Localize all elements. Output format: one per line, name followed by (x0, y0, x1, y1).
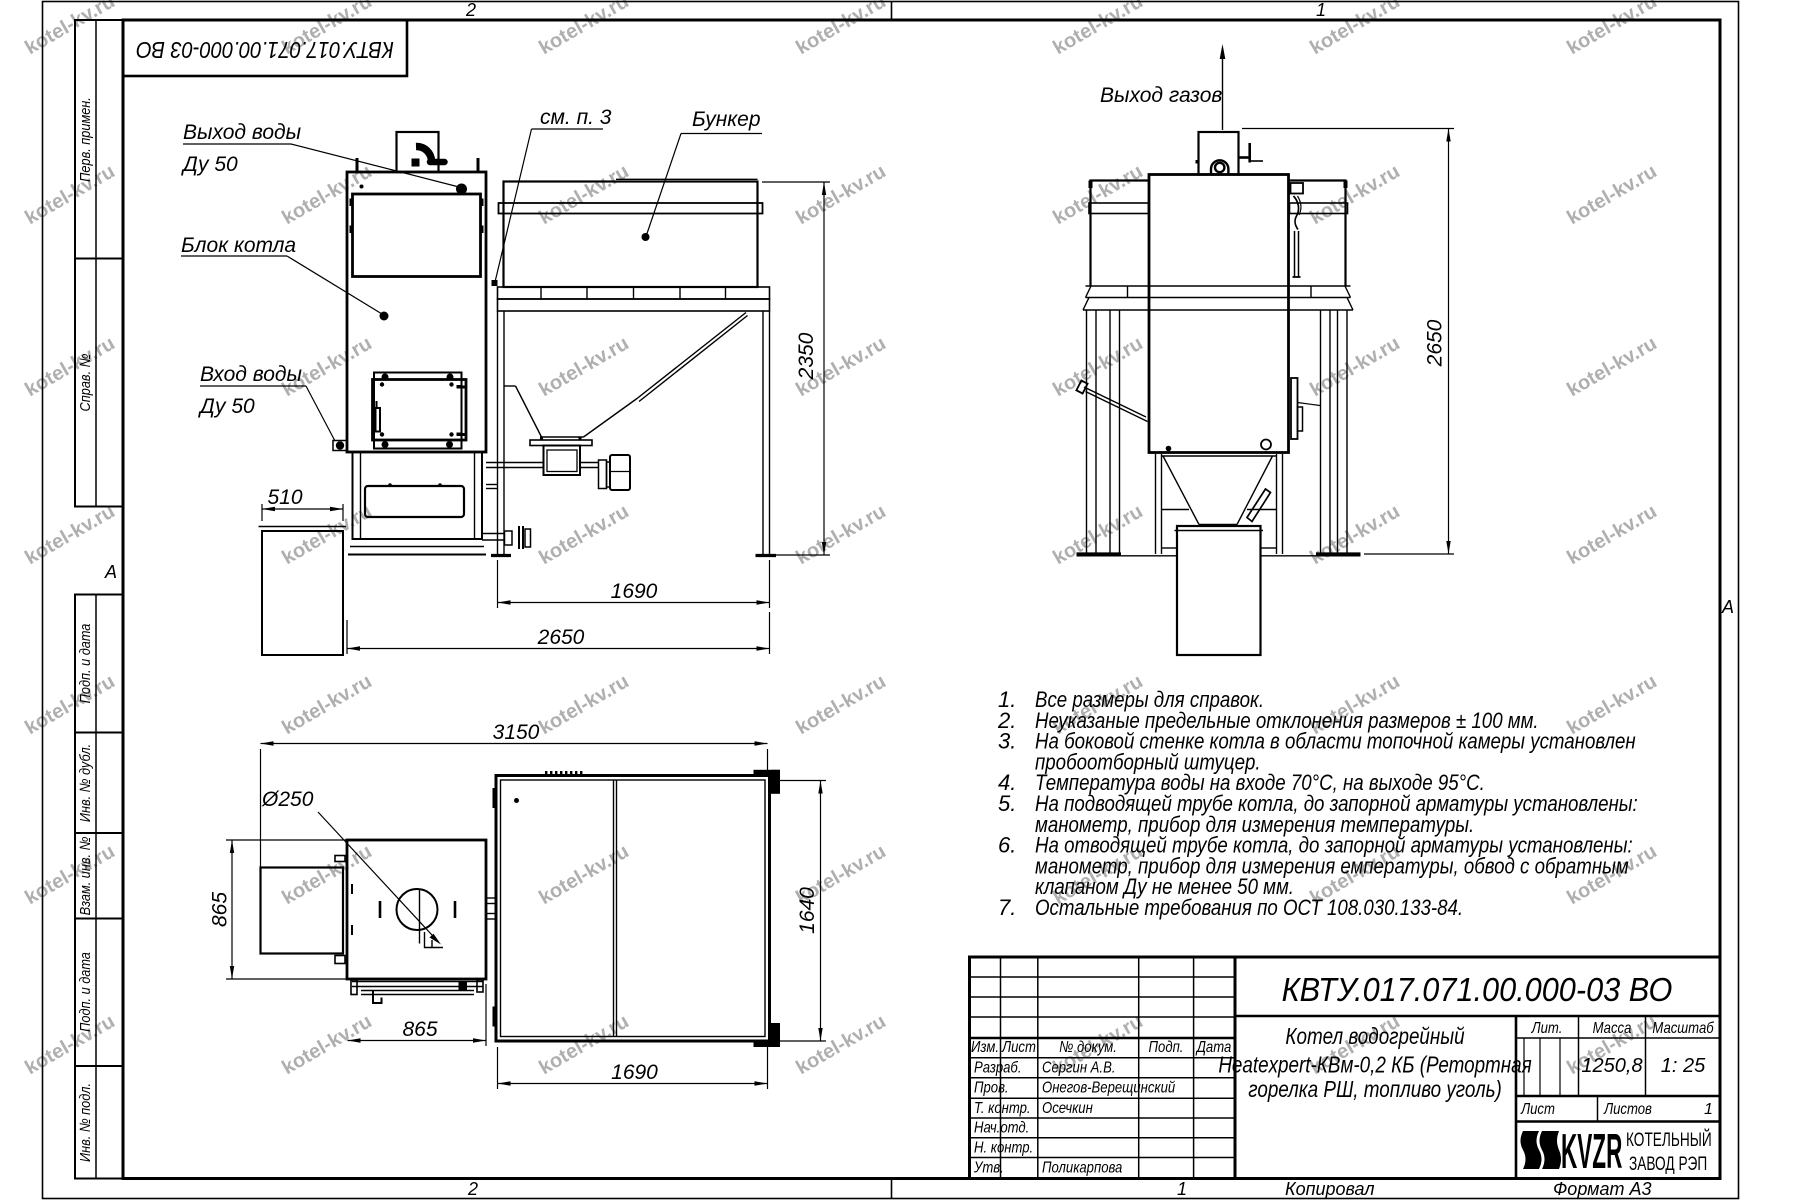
svg-text:1250,8: 1250,8 (1581, 1055, 1642, 1077)
svg-text:Онегов-Верещинский: Онегов-Верещинский (1042, 1079, 1175, 1096)
svg-text:ЗАВОД РЭП: ЗАВОД РЭП (1629, 1153, 1707, 1175)
svg-text:2650: 2650 (537, 626, 585, 649)
svg-text:2: 2 (465, 0, 476, 20)
svg-text:Подп.: Подп. (1149, 1039, 1184, 1056)
svg-text:2350: 2350 (795, 332, 818, 380)
svg-text:1690: 1690 (611, 580, 658, 603)
svg-text:Ду 50: Ду 50 (181, 153, 238, 176)
svg-text:см. п. 3: см. п. 3 (540, 106, 612, 129)
svg-text:510: 510 (267, 486, 302, 509)
svg-text:2: 2 (467, 1179, 478, 1199)
svg-text:1: 1 (1177, 1179, 1187, 1199)
svg-text:3150: 3150 (493, 721, 540, 744)
svg-text:горелка РШ, топливо уголь): горелка РШ, топливо уголь) (1248, 1077, 1502, 1102)
svg-text:Котел водогрейный: Котел водогрейный (1285, 1024, 1465, 1049)
svg-text:Вход воды: Вход воды (200, 363, 302, 386)
svg-text:Ø250: Ø250 (261, 788, 314, 811)
svg-text:А: А (1721, 597, 1734, 617)
svg-text:Поликарпова: Поликарпова (1042, 1159, 1122, 1176)
svg-text:5.: 5. (998, 791, 1016, 816)
svg-text:Лист: Лист (1520, 1101, 1555, 1118)
svg-text:Масштаб: Масштаб (1652, 1020, 1714, 1037)
svg-text:Копировал: Копировал (1285, 1179, 1375, 1199)
svg-text:Выход воды: Выход воды (183, 121, 302, 144)
svg-text:Лит.: Лит. (1531, 1020, 1563, 1037)
svg-text:Блок котла: Блок котла (181, 234, 296, 257)
svg-text:Листов: Листов (1603, 1101, 1652, 1118)
svg-text:Масса: Масса (1593, 1020, 1632, 1037)
svg-text:865: 865 (402, 1018, 437, 1041)
svg-text:Инв. № дубл.: Инв. № дубл. (76, 744, 93, 822)
svg-text:Выход газов: Выход газов (1100, 84, 1222, 107)
svg-text:6.: 6. (998, 833, 1016, 858)
svg-text:Разраб.: Разраб. (974, 1059, 1021, 1076)
svg-text:КВТУ.017.071.00.000-03 ВО: КВТУ.017.071.00.000-03 ВО (136, 37, 394, 64)
svg-text:1: 1 (1704, 1101, 1713, 1118)
svg-text:3.: 3. (998, 729, 1016, 754)
svg-text:Нач.отд.: Нач.отд. (974, 1119, 1029, 1136)
svg-text:КВТУ.017.071.00.000-03 ВО: КВТУ.017.071.00.000-03 ВО (1282, 971, 1673, 1008)
svg-text:Изм.: Изм. (971, 1039, 999, 1056)
svg-text:Ду 50: Ду 50 (198, 395, 255, 418)
svg-text:Подп. и дата: Подп. и дата (76, 952, 93, 1032)
svg-text:Heatexpert-КВм-0,2 КБ (Ретортн: Heatexpert-КВм-0,2 КБ (Ретортная (1218, 1053, 1531, 1078)
svg-text:Осечкин: Осечкин (1042, 1100, 1093, 1117)
svg-text:Перв. примен.: Перв. примен. (76, 97, 93, 182)
svg-text:Справ. №: Справ. № (76, 354, 93, 412)
svg-text:Пров.: Пров. (974, 1079, 1009, 1096)
svg-text:Остальные требования по ОСТ 10: Остальные требования по ОСТ 108.030.133-… (1035, 897, 1463, 921)
svg-text:Утв.: Утв. (973, 1159, 1004, 1176)
svg-text:1690: 1690 (611, 1061, 658, 1084)
svg-text:Н. контр.: Н. контр. (974, 1139, 1033, 1156)
svg-text:Сергин А.В.: Сергин А.В. (1042, 1059, 1115, 1076)
svg-text:7.: 7. (998, 895, 1016, 920)
svg-text:Т. контр.: Т. контр. (974, 1100, 1031, 1117)
svg-text:А: А (104, 562, 117, 582)
svg-text:№ докум.: № докум. (1059, 1039, 1117, 1056)
svg-text:Инв. № подл.: Инв. № подл. (76, 1083, 93, 1162)
svg-text:Формат А3: Формат А3 (1553, 1179, 1652, 1199)
svg-text:KVZR: KVZR (1561, 1124, 1622, 1179)
svg-text:КОТЕЛЬНЫЙ: КОТЕЛЬНЫЙ (1626, 1129, 1712, 1151)
svg-text:865: 865 (209, 892, 232, 927)
svg-text:1: 25: 1: 25 (1661, 1055, 1706, 1077)
svg-text:Подп. и дата: Подп. и дата (76, 623, 93, 703)
svg-text:Взам. инв. №: Взам. инв. № (76, 837, 93, 916)
svg-text:1: 1 (1316, 0, 1326, 20)
svg-text:1640: 1640 (796, 887, 819, 934)
svg-text:Лист: Лист (1001, 1039, 1036, 1056)
svg-text:Бункер: Бункер (692, 108, 761, 131)
svg-text:2650: 2650 (1424, 319, 1447, 367)
